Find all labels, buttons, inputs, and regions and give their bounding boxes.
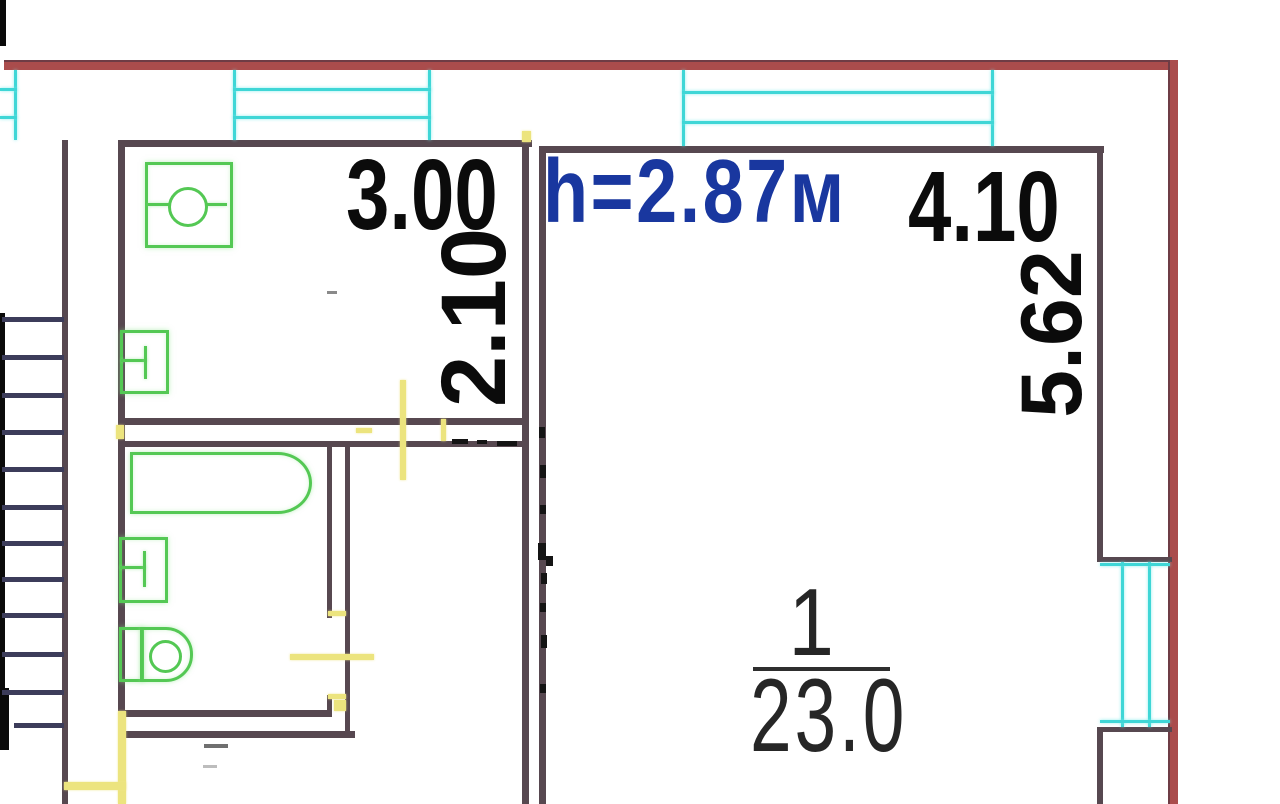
door-mark xyxy=(522,131,531,142)
ink-dash xyxy=(204,744,228,748)
ceiling-height-label: h=2.87м xyxy=(543,147,847,237)
stair-tread xyxy=(2,652,64,657)
bathroom-sink-line-v xyxy=(143,551,146,587)
stair-tread xyxy=(2,541,64,546)
stair-tread xyxy=(2,317,64,322)
ink-dash xyxy=(452,439,468,444)
door-mark xyxy=(116,425,124,439)
stair-tread xyxy=(2,467,64,472)
bathroom-right-wall-upper xyxy=(327,447,332,618)
living-room-right-wall-lower xyxy=(1097,728,1103,804)
ink-dash xyxy=(477,440,487,444)
stair-tread xyxy=(2,355,64,360)
living-window-right-jamb xyxy=(991,70,994,146)
edge-window-frame-line xyxy=(0,88,17,91)
room-area-label: 23.0 xyxy=(750,664,907,768)
kitchen-sink-line-v xyxy=(144,346,147,379)
door-mark xyxy=(356,428,372,433)
outer-wall-top xyxy=(4,60,1176,70)
door-mark xyxy=(334,700,346,711)
stairwell-wall xyxy=(62,140,68,804)
ink-dash xyxy=(540,684,546,693)
kitchen-bottom-wall xyxy=(118,418,529,425)
edge-window-jamb xyxy=(14,70,17,140)
room-number-label: 1 xyxy=(753,575,869,671)
ink-dash xyxy=(540,505,546,514)
kitchen-window-left-jamb xyxy=(233,70,236,140)
door-mark xyxy=(118,711,126,804)
balcony-window-bottom-line xyxy=(1100,720,1170,723)
balcony-window-top-line xyxy=(1100,563,1170,566)
kitchen-window-frame-line xyxy=(233,88,431,91)
living-window-left-jamb xyxy=(682,70,685,146)
ink-dash xyxy=(327,291,337,294)
living-window-sill-line xyxy=(682,121,994,124)
ink-dash xyxy=(540,465,546,478)
ink-dash xyxy=(541,635,547,648)
kitchen-depth-dimension: 2.10 xyxy=(429,237,519,407)
stair-tread xyxy=(2,613,64,618)
stair-tread xyxy=(2,690,64,695)
room-depth-dimension: 5.62 xyxy=(1007,249,1097,419)
ink-dash xyxy=(497,441,517,446)
door-mark xyxy=(441,419,446,441)
toilet-seat-icon xyxy=(149,640,182,673)
right-window-cap-top xyxy=(1097,557,1172,562)
door-mark xyxy=(328,611,346,616)
living-window-frame-line xyxy=(682,91,994,94)
hall-bottom-wall xyxy=(123,731,355,738)
kitchen-stove-burner-icon xyxy=(168,187,208,227)
ink-dash xyxy=(539,427,545,438)
stair-tread xyxy=(2,393,64,398)
balcony-window-jamb-right xyxy=(1148,562,1151,727)
bathtub-icon xyxy=(130,452,312,514)
outer-wall-right xyxy=(1168,60,1178,804)
ink-dash xyxy=(546,556,553,566)
floor-plan: 3.00 2.10 h=2.87м 4.10 5.62 1 23.0 xyxy=(0,0,1280,804)
door-mark xyxy=(328,694,346,699)
ink-dash xyxy=(203,765,217,768)
stair-tread xyxy=(2,577,64,582)
door-mark xyxy=(64,782,126,790)
stair-tread xyxy=(14,723,64,728)
scan-edge-left-blob xyxy=(0,688,9,750)
door-mark xyxy=(400,380,406,480)
stair-tread xyxy=(2,505,64,510)
kitchen-window-right-jamb xyxy=(428,70,431,140)
scan-edge-top-left xyxy=(0,0,6,46)
ink-dash xyxy=(541,573,547,584)
room-width-dimension: 4.10 xyxy=(908,157,1060,257)
stair-tread xyxy=(2,430,64,435)
door-mark xyxy=(290,654,374,660)
bathroom-bottom-wall xyxy=(118,710,332,717)
kitchen-window-sill-line xyxy=(233,116,431,119)
ink-dash xyxy=(538,543,546,560)
edge-window-sill-line xyxy=(0,116,17,119)
balcony-window-jamb-left xyxy=(1121,562,1124,727)
right-window-cap-bottom xyxy=(1097,727,1172,732)
ink-dash xyxy=(540,603,546,612)
